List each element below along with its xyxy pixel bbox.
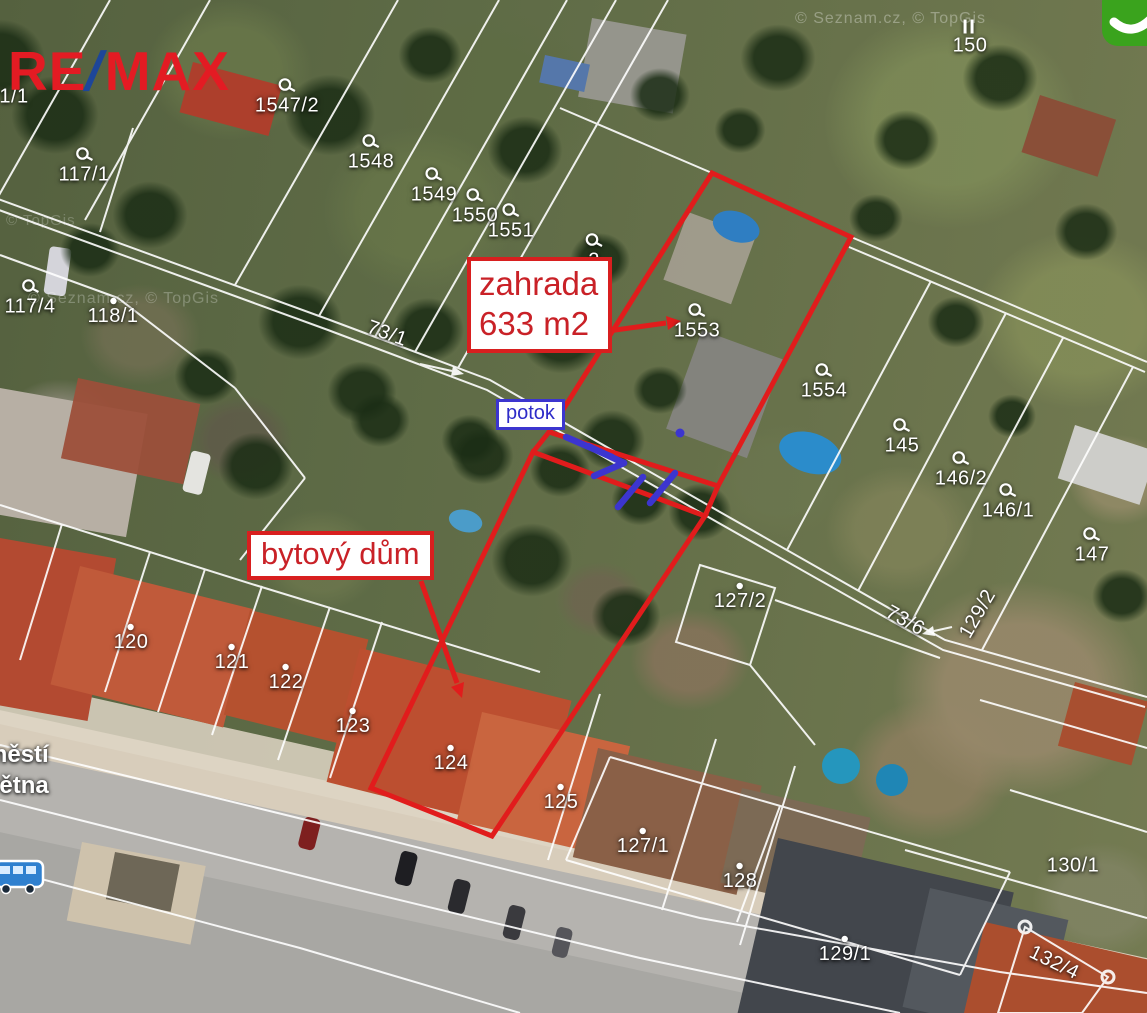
cadastral-lines-overlay bbox=[0, 0, 1147, 1013]
watermark-seznam-2: © Seznam.cz, © TopGis bbox=[28, 290, 219, 308]
street-name-line2: větna bbox=[0, 770, 49, 801]
green-map-icon[interactable] bbox=[1100, 0, 1147, 50]
red-arrowheads bbox=[451, 316, 681, 698]
zahrada-annotation-line1: zahrada bbox=[479, 264, 598, 304]
remax-logo-re: RE bbox=[8, 40, 86, 102]
watermark-topgis: © TopGis bbox=[6, 212, 76, 229]
street-name-line1: městí bbox=[0, 739, 49, 770]
potok-annotation: potok bbox=[496, 399, 565, 430]
bytovy-dum-annotation: bytový dům bbox=[247, 531, 434, 580]
zahrada-annotation-line2: 633 m2 bbox=[479, 304, 598, 344]
remax-logo-max: MAX bbox=[105, 40, 230, 102]
blue-dot-marker bbox=[676, 429, 685, 438]
map-canvas[interactable]: 1/1117/11547/215481549155015512155315541… bbox=[0, 0, 1147, 1013]
bus-stop-icon[interactable] bbox=[0, 858, 46, 896]
remax-logo: RE/MAX bbox=[8, 44, 230, 99]
parcel-boundary-lines bbox=[0, 0, 1147, 1013]
street-name-label: městí větna bbox=[0, 739, 49, 801]
zahrada-annotation: zahrada 633 m2 bbox=[467, 257, 612, 353]
watermark-seznam: © Seznam.cz, © TopGis bbox=[795, 10, 986, 28]
